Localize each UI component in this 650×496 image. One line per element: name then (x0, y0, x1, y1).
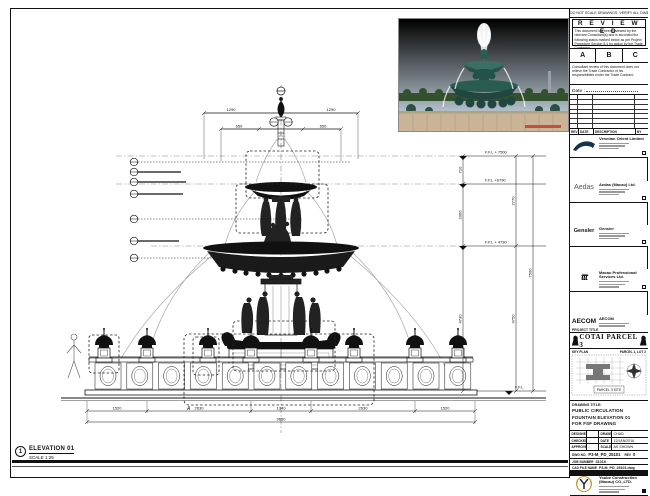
project-title: COTAI PARCEL 3 (579, 333, 638, 349)
review-stamp-title: R E V I E W E D (573, 20, 645, 28)
contractor-name: Yoube Construction (Macau) CO.,LTD. (599, 476, 645, 485)
scale-label: SCALE (599, 444, 612, 451)
stamp-date-row: Date : (570, 85, 648, 95)
key-plan-map: PARCEL 3 SITE (570, 354, 648, 398)
drawing-title-line1: PUBLIC CIRCULATION (572, 408, 646, 413)
consultant-checkbox (642, 240, 647, 245)
credits-table: DESIGNED DRAWN CHAD CHECKED - DATE 12/JA… (570, 431, 648, 451)
balustrade (61, 357, 546, 401)
banner-ornament-left-icon (571, 334, 579, 347)
project-title-banner: COTAI PARCEL 3 (570, 333, 648, 349)
designed-label: DESIGNED (570, 431, 587, 437)
consultant-row-venetian: Venetian Orient Limited (570, 135, 648, 158)
sheet-top-note: DO NOT SCALE DRAWINGS. VERIFY ALL DIMENS… (570, 9, 648, 18)
status-b: B (596, 49, 622, 62)
vdim-2060: 2060 (458, 210, 463, 220)
date-label: DATE (599, 438, 612, 444)
consultant-checkbox (642, 196, 647, 201)
by-col-header: BY (636, 129, 648, 134)
dim-b2: 2630 (195, 406, 205, 411)
dim-upper-right: 650 (320, 124, 327, 129)
job-number-value: 31010 (595, 460, 606, 464)
rev-col-header: REV (570, 129, 579, 134)
sheet-frame: 1290 1290 650 650 (10, 8, 648, 478)
dim-top-right: 1290 (327, 107, 337, 112)
dim-b3: 1340 (277, 406, 287, 411)
consultant-note: Consultant review of this document does … (570, 63, 648, 85)
venetian-logo-icon (571, 138, 597, 153)
dim-b4: 2630 (359, 406, 369, 411)
drawing-number-bubble: 1 (15, 446, 26, 457)
consultant-checkbox (642, 151, 647, 156)
cad-file-label: CAD FILE NAME (572, 466, 597, 470)
rev-label: REV (624, 453, 631, 457)
contractor-checkbox (642, 489, 647, 494)
scale-figure (67, 334, 81, 378)
aedas-logo-icon: Aedas (571, 184, 597, 191)
checked-value: - (587, 438, 599, 444)
top-detail-bubble-icon (277, 87, 285, 95)
consultant-name: Gensler (599, 227, 645, 231)
title-block: DO NOT SCALE DRAWINGS. VERIFY ALL DIMENS… (569, 9, 647, 477)
dim-b5: 1520 (441, 406, 451, 411)
obelisk (548, 71, 551, 93)
level-ffl: F.F.L. (515, 385, 525, 390)
dwg-number-row: DWG NO. P3-M_PD_25101 REV 0 (570, 451, 648, 459)
dwg-no-label: DWG NO. (572, 453, 586, 457)
consultant-name: Macau Professional Services Ltd. (599, 271, 645, 280)
review-stamp-body: This document has been reviewed by the r… (573, 28, 645, 49)
designed-value (587, 431, 599, 437)
approved-value: - (587, 444, 599, 451)
drawing-title-line3: FOR FSF DRAWING (572, 421, 646, 426)
elevation-title: 1 ELEVATION 01 SCALE 1:25 (15, 446, 74, 460)
dim-total: 9650 (277, 417, 287, 422)
key-plan-building (586, 364, 610, 380)
drawn-label: DRAWN (599, 431, 612, 437)
level-4730: F.F.L + 4730 (485, 240, 508, 245)
photo-watermark (525, 125, 561, 128)
checked-label: CHECKED (570, 438, 587, 444)
dwg-no-value: P3-M_PD_25101 (588, 452, 620, 457)
date-col-header: DATE (579, 129, 594, 134)
cad-file-value: P3-M_PD_25101.dwg (599, 466, 635, 470)
ttt-logo-icon: ttt (571, 272, 597, 282)
bottom-frame-line (12, 466, 568, 467)
rev-value: 0 (633, 452, 635, 457)
consultant-row-mps: ttt Macau Professional Services Ltd. (570, 269, 648, 292)
vdim-710: 710 (458, 166, 463, 173)
vdim-4730: 4730 (458, 314, 463, 324)
consultant-name: Venetian Orient Limited (599, 137, 645, 141)
contractor-box: Yoube Construction (Macau) CO.,LTD. (570, 473, 648, 496)
reference-bar (570, 471, 648, 476)
key-plan-site-label: PARCEL 3 SITE (597, 388, 622, 392)
gensler-logo-icon: Gensler (571, 228, 597, 234)
drawn-value: CHAD (612, 431, 648, 437)
yoube-logo-icon (571, 475, 597, 494)
banner-ornament-right-icon (639, 334, 647, 347)
stone-wall (399, 111, 568, 131)
date-blank-line (586, 87, 638, 92)
consultant-checkbox (642, 285, 647, 290)
drawing-title-box: DRAWING TITLE: PUBLIC CIRCULATION FOUNTA… (570, 401, 648, 431)
status-row: A B C (570, 49, 648, 63)
date-value: 12/JAN/2016 (612, 438, 648, 444)
elevation-drawing-area: 1290 1290 650 650 (11, 9, 569, 477)
consultant-name: AECOM (599, 317, 645, 321)
revision-table (570, 95, 648, 129)
dim-upper-left: 650 (236, 124, 243, 129)
level-7500: F.F.L + 7500 (485, 150, 508, 155)
level-6790: F.F.L +6790 (485, 178, 506, 183)
consultant-row-gensler: Gensler Gensler (570, 225, 648, 247)
reference-photo (398, 18, 569, 132)
elevation-name: ELEVATION 01 (29, 446, 74, 454)
mid-basin (203, 242, 359, 284)
dim-b1: 1520 (113, 406, 123, 411)
date-label: Date : (572, 89, 585, 94)
compass-icon (626, 363, 642, 379)
drawing-title-line2: FOUNTAIN ELEVATION 01 (572, 415, 646, 420)
vdim-4750: 4750 (511, 314, 516, 324)
vdim-2770: 2770 (511, 196, 516, 206)
status-c: C (623, 49, 648, 62)
drawing-title-label: DRAWING TITLE: (572, 403, 646, 407)
drawing-sheet: 1290 1290 650 650 (0, 0, 650, 488)
review-stamp: R E V I E W E D This document has been r… (570, 18, 648, 49)
approved-label: APPROVED (570, 444, 587, 451)
consultant-name: Aedas (Macau) Ltd. (599, 183, 645, 187)
consultant-row-aedas: Aedas Aedas (Macau) Ltd. (570, 181, 648, 203)
aecom-logo-icon: AECOM (571, 318, 597, 325)
vdim-7500: 7500 (528, 268, 533, 278)
scale-value: AS SHOWN (612, 444, 648, 451)
key-plan: KEY PLAN PARCEL 1, LOT 2 PARCE (570, 349, 648, 401)
dim-top-left: 1290 (227, 107, 237, 112)
description-col-header: DESCRIPTION (594, 129, 636, 134)
bottom-frame-bar (12, 460, 568, 463)
job-number-label: JOB NUMBER (572, 460, 593, 464)
status-a: A (570, 49, 596, 62)
photo-svg (399, 19, 568, 131)
